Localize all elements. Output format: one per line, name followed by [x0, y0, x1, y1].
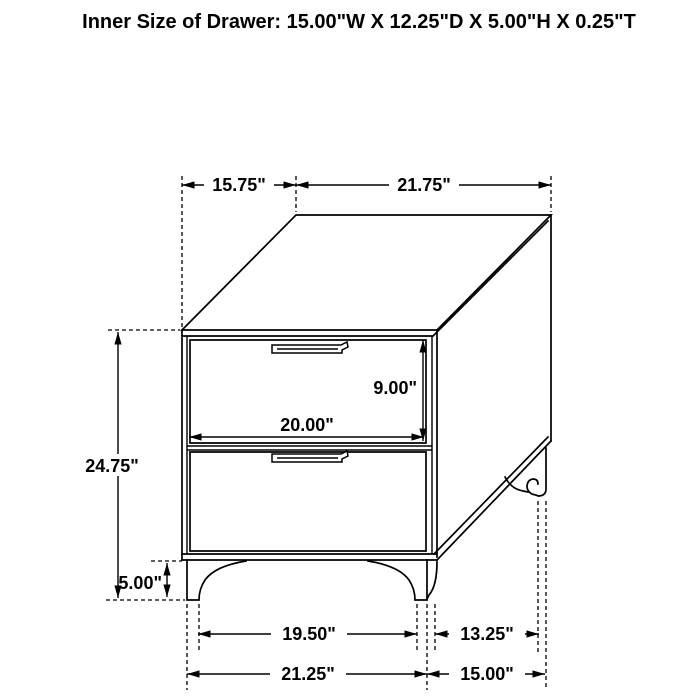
dimension-label-front-leg-span: 19.50" — [282, 624, 336, 644]
dimension-label-top-width: 21.75" — [397, 175, 451, 195]
side-bottom-outer-edge — [437, 441, 551, 560]
dimension-lines — [118, 185, 551, 674]
cabinet-front-face — [182, 330, 437, 560]
dimension-label-drawer-width: 20.00" — [280, 415, 334, 435]
top-drawer-handle-icon — [272, 342, 348, 353]
side-bottom-inner-edge — [434, 437, 548, 554]
nightstand-dimension-diagram: Inner Size of Drawer: 15.00"W X 12.25"D … — [0, 0, 700, 700]
cabinet-right-face — [434, 215, 551, 560]
top-panel-edge — [182, 221, 548, 336]
dimension-label-side-base-depth: 15.00" — [460, 664, 514, 684]
page-title: Inner Size of Drawer: 15.00"W X 12.25"D … — [82, 11, 636, 33]
bottom-drawer-front — [190, 452, 426, 551]
dimension-label-leg-height: 5.00" — [118, 573, 162, 593]
dimension-diagram-page: Inner Size of Drawer: 15.00"W X 12.25"D … — [0, 0, 700, 700]
cabinet-top-face — [182, 215, 551, 336]
drawer-handles — [272, 342, 348, 462]
side-front-leg — [427, 562, 437, 599]
dimension-label-drawer-height: 9.00" — [373, 378, 417, 398]
cabinet-legs — [187, 448, 546, 600]
front-right-leg — [368, 560, 427, 600]
front-left-leg — [187, 560, 246, 600]
dimension-label-front-base-width: 21.25" — [281, 664, 335, 684]
dimension-label-top-depth-offset: 15.75" — [212, 175, 266, 195]
dimension-label-overall-height: 24.75" — [85, 456, 139, 476]
dimension-label-side-leg-span: 13.25" — [460, 624, 514, 644]
